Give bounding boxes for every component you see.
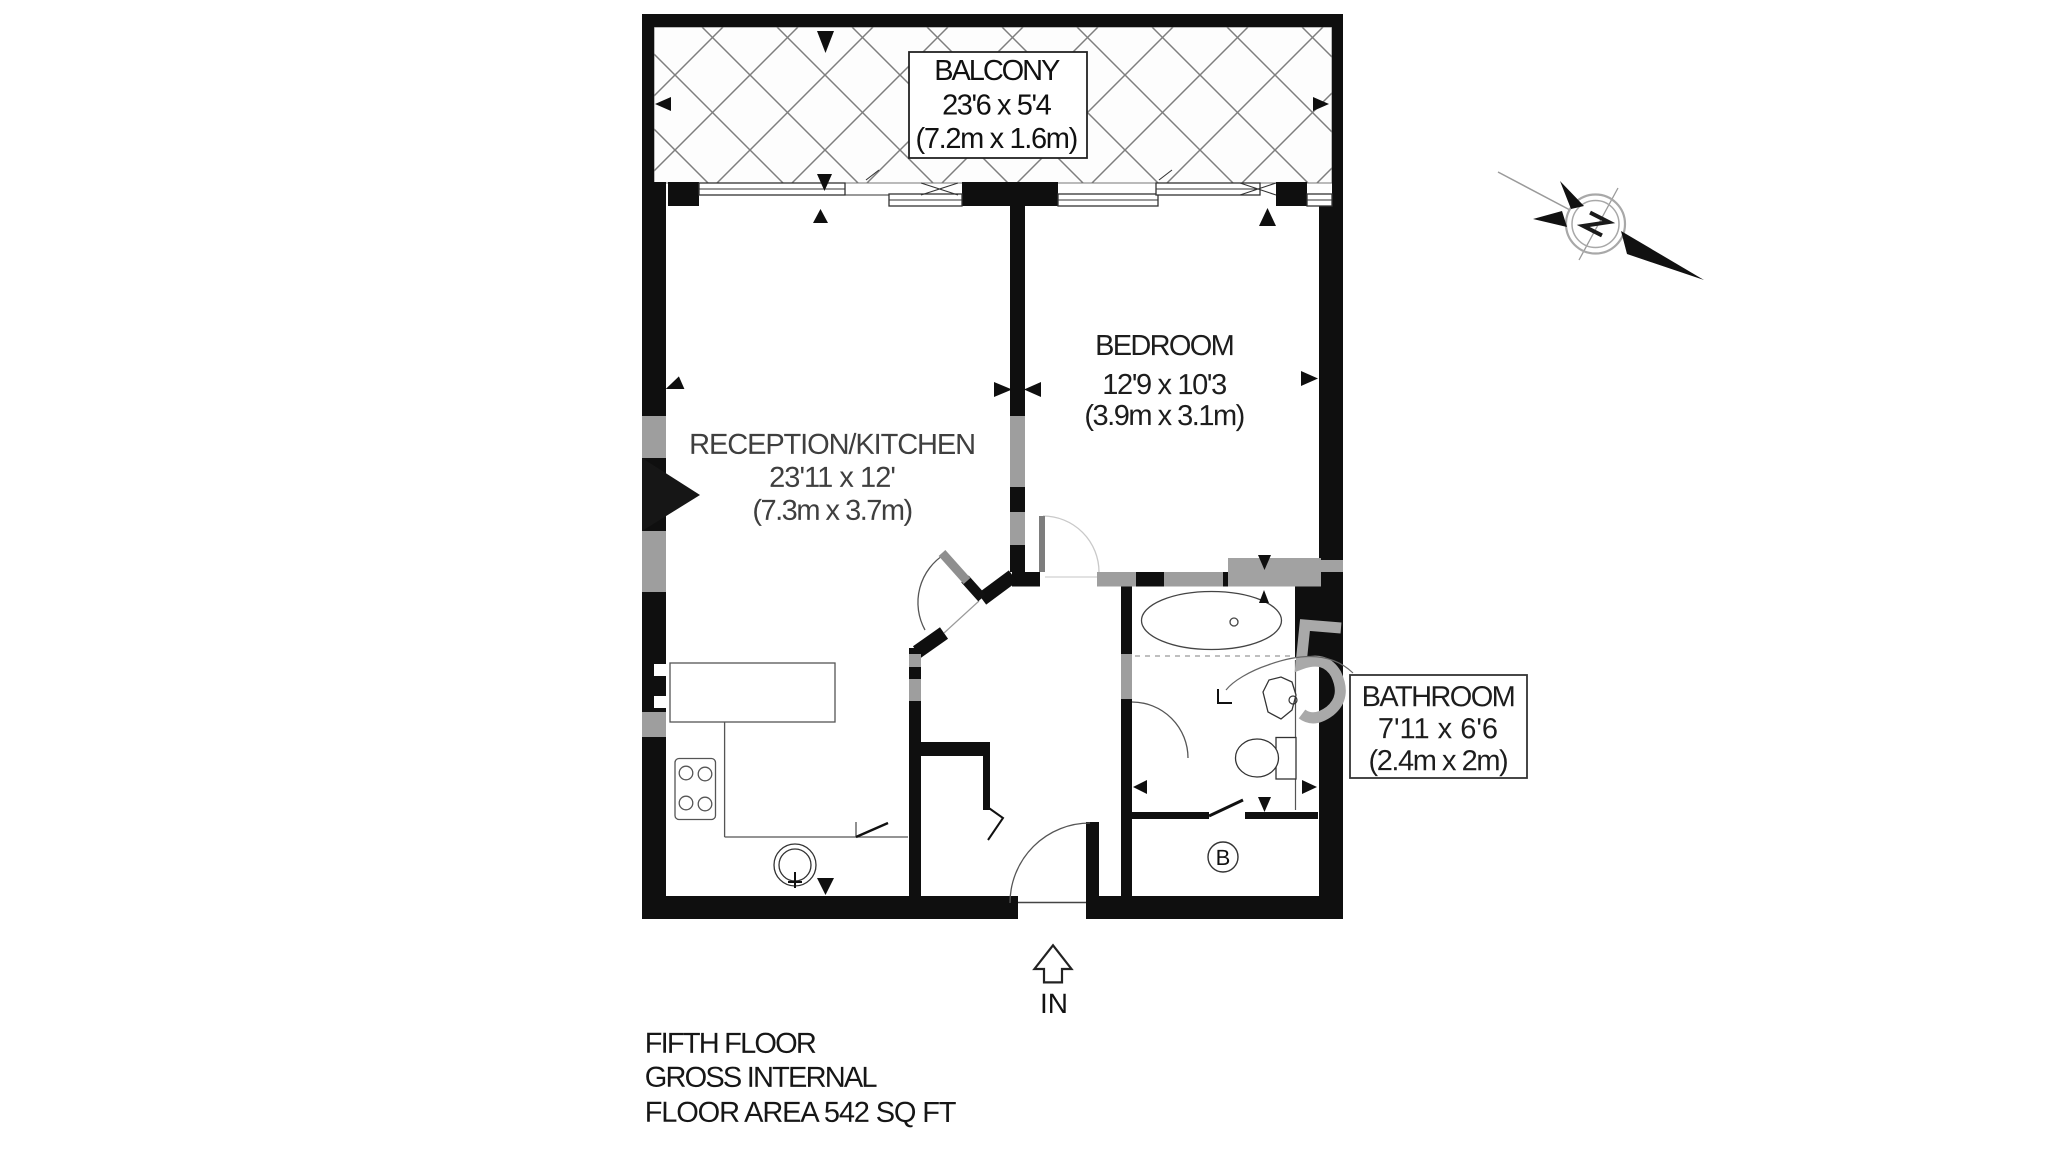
svg-text:(7.3m x 3.7m): (7.3m x 3.7m) — [752, 495, 911, 527]
svg-text:IN: IN — [1040, 988, 1068, 1019]
svg-text:23'11 x 12': 23'11 x 12' — [769, 462, 895, 494]
svg-text:FLOOR AREA 542 SQ FT: FLOOR AREA 542 SQ FT — [645, 1097, 957, 1129]
svg-text:RECEPTION/KITCHEN: RECEPTION/KITCHEN — [689, 429, 975, 461]
svg-text:GROSS INTERNAL: GROSS INTERNAL — [645, 1062, 878, 1094]
svg-text:12'9 x 10'3: 12'9 x 10'3 — [1102, 369, 1226, 401]
svg-text:(3.9m x 3.1m): (3.9m x 3.1m) — [1084, 400, 1243, 432]
svg-text:BATHROOM: BATHROOM — [1362, 681, 1515, 713]
svg-text:23'6 x 5'4: 23'6 x 5'4 — [942, 89, 1052, 121]
svg-text:(7.2m x 1.6m): (7.2m x 1.6m) — [916, 123, 1077, 155]
svg-text:BALCONY: BALCONY — [934, 55, 1060, 87]
svg-text:(2.4m x 2m): (2.4m x 2m) — [1369, 745, 1508, 777]
svg-text:B: B — [1216, 845, 1231, 870]
svg-text:BEDROOM: BEDROOM — [1095, 330, 1233, 362]
svg-text:FIFTH FLOOR: FIFTH FLOOR — [645, 1028, 816, 1060]
svg-text:7'11 x 6'6: 7'11 x 6'6 — [1378, 713, 1498, 745]
